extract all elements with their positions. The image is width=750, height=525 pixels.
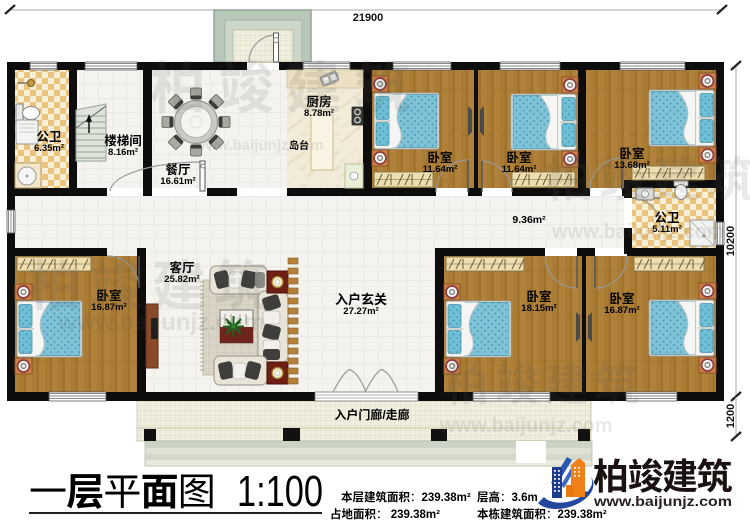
svg-text:www.baijunjz.com: www.baijunjz.com: [57, 309, 265, 336]
svg-text:18.15m²: 18.15m²: [521, 303, 556, 314]
svg-text:www.baijunjz.com: www.baijunjz.com: [593, 494, 732, 509]
svg-text:www.baijunjz.com: www.baijunjz.com: [439, 415, 613, 437]
svg-text:柏竣建筑: 柏竣建筑: [545, 140, 750, 210]
svg-text:www.baijunjz.com: www.baijunjz.com: [551, 221, 725, 243]
svg-text:层高：3.6m: 层高：3.6m: [477, 489, 538, 505]
svg-text:一层平面图: 一层平面图: [29, 461, 215, 516]
svg-text:27.27m²: 27.27m²: [343, 306, 378, 317]
svg-text:本栋建筑面积：239.38m²: 本栋建筑面积：239.38m²: [477, 506, 607, 522]
svg-text:16.87m²: 16.87m²: [604, 305, 639, 316]
svg-text:柏竣建筑: 柏竣建筑: [593, 448, 733, 500]
svg-text:11.64m²: 11.64m²: [502, 164, 537, 175]
svg-text:www.baijunjz.com: www.baijunjz.com: [193, 137, 323, 154]
svg-text:11.64m²: 11.64m²: [423, 164, 458, 175]
svg-text:1200: 1200: [725, 404, 737, 428]
svg-text:1:100: 1:100: [237, 455, 323, 519]
svg-text:9.36m²: 9.36m²: [512, 214, 546, 226]
svg-text:10200: 10200: [725, 226, 737, 257]
svg-text:占地面积： 239.38m²: 占地面积： 239.38m²: [330, 506, 440, 522]
svg-text:16.61m²: 16.61m²: [160, 176, 195, 187]
svg-text:入户门廊/走廊: 入户门廊/走廊: [334, 406, 409, 423]
svg-text:6.35m²: 6.35m²: [34, 143, 64, 154]
svg-text:柏竣建筑: 柏竣建筑: [150, 44, 422, 125]
svg-text:本层建筑面积：239.38m²: 本层建筑面积：239.38m²: [341, 489, 471, 505]
svg-text:21900: 21900: [353, 12, 384, 24]
svg-text:柏竣建筑: 柏竣建筑: [445, 349, 645, 413]
svg-text:8.16m²: 8.16m²: [108, 147, 138, 158]
